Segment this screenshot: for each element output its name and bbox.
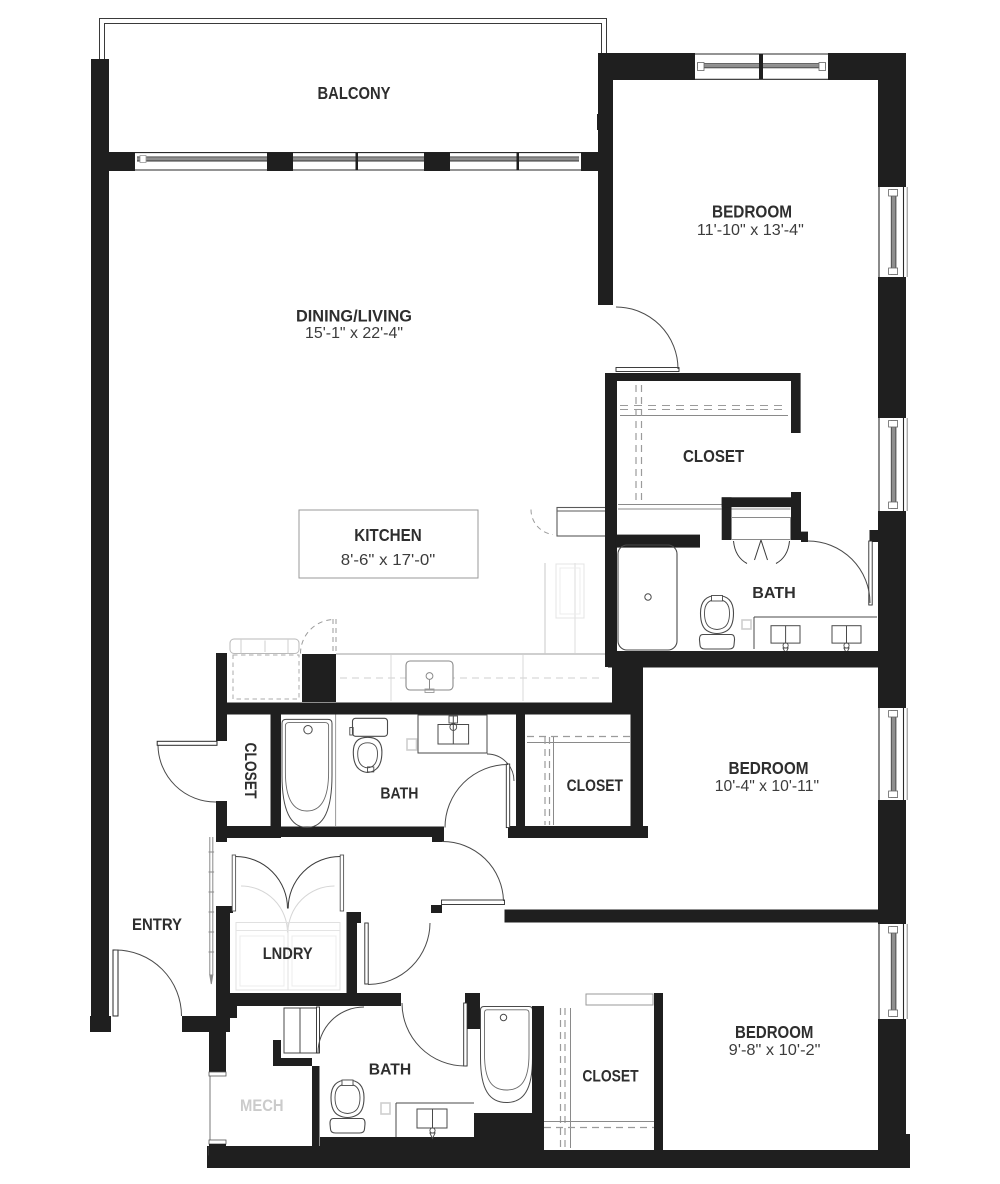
svg-text:BALCONY: BALCONY: [318, 83, 391, 103]
svg-text:CLOSET: CLOSET: [567, 777, 623, 795]
svg-text:BATH: BATH: [752, 585, 796, 602]
svg-text:KITCHEN: KITCHEN: [354, 525, 422, 545]
svg-text:BEDROOM: BEDROOM: [735, 1022, 813, 1042]
svg-text:DINING/LIVING: DINING/LIVING: [296, 306, 412, 325]
svg-text:CLOSET: CLOSET: [683, 446, 745, 466]
svg-text:MECH: MECH: [240, 1097, 284, 1115]
svg-text:BATH: BATH: [380, 785, 418, 802]
svg-text:ENTRY: ENTRY: [132, 916, 182, 934]
svg-text:CLOSET: CLOSET: [241, 743, 259, 799]
svg-text:CLOSET: CLOSET: [582, 1068, 638, 1086]
svg-text:LNDRY: LNDRY: [263, 944, 314, 963]
svg-text:10'-4" x 10'-11": 10'-4" x 10'-11": [715, 778, 819, 795]
svg-text:8'-6" x 17'-0": 8'-6" x 17'-0": [341, 552, 436, 569]
svg-text:11'-10" x 13'-4": 11'-10" x 13'-4": [697, 222, 804, 239]
svg-text:15'-1" x 22'-4": 15'-1" x 22'-4": [305, 325, 403, 342]
svg-text:9'-8" x 10'-2": 9'-8" x 10'-2": [729, 1042, 821, 1059]
svg-text:BEDROOM: BEDROOM: [712, 201, 792, 221]
svg-text:BATH: BATH: [369, 1061, 411, 1078]
svg-text:BEDROOM: BEDROOM: [729, 758, 809, 778]
